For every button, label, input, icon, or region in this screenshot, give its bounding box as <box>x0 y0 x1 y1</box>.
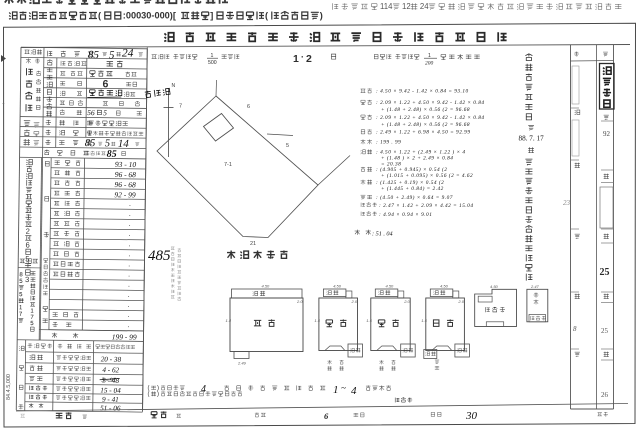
svg-text:(: ( <box>148 392 150 398</box>
svg-text:7-1: 7-1 <box>224 162 232 168</box>
svg-text:·: · <box>128 293 130 300</box>
svg-text:2.0: 2.0 <box>403 299 410 304</box>
svg-text:500: 500 <box>208 60 217 66</box>
svg-text:4.50: 4.50 <box>262 284 271 289</box>
svg-text:+ (1.48 + 2.48) × 0.56 (2 = 96: + (1.48 + 2.48) × 0.56 (2 = 96.68 <box>381 121 470 128</box>
svg-text:·: · <box>128 243 130 250</box>
svg-text:93 - 10: 93 - 10 <box>115 160 137 169</box>
svg-text:·: · <box>128 232 130 239</box>
svg-text:200: 200 <box>425 61 434 67</box>
svg-text:92 - 99: 92 - 99 <box>114 190 136 199</box>
svg-text:4.50: 4.50 <box>386 284 395 289</box>
svg-text:·: · <box>127 303 129 310</box>
svg-text:·: · <box>301 52 304 62</box>
svg-text:114: 114 <box>380 2 393 11</box>
svg-text:·: · <box>128 283 130 290</box>
svg-text:: 4.50 × 1.22 + (2.49 × 1.22 ): : 4.50 × 1.22 + (2.49 × 1.22 ) × 4 <box>376 149 466 156</box>
svg-text:: 4.94 × 0.94 × 9.01: : 4.94 × 0.94 × 9.01 <box>379 212 432 218</box>
svg-text:·: · <box>128 253 130 260</box>
svg-text:96 - 68: 96 - 68 <box>115 180 137 189</box>
svg-text:·: · <box>129 212 131 219</box>
svg-text:12: 12 <box>402 2 411 11</box>
svg-text:+ (1.015 + 0.095) × 0.56 (2 =: + (1.015 + 0.095) × 0.56 (2 = 4.62 <box>381 172 473 179</box>
svg-text:·: · <box>127 324 129 331</box>
svg-text:3: 3 <box>25 275 29 284</box>
svg-text:84.4.5,000: 84.4.5,000 <box>6 374 12 400</box>
svg-text:: (4.50 + 2.49) × 0.64 = 9.07: : (4.50 + 2.49) × 0.64 = 9.07 <box>376 194 453 201</box>
svg-text:·: · <box>127 313 129 320</box>
svg-text:6: 6 <box>25 241 29 250</box>
svg-text:85: 85 <box>88 49 100 61</box>
svg-text:26: 26 <box>601 391 609 399</box>
svg-text:485: 485 <box>148 248 171 264</box>
svg-text:1.4: 1.4 <box>421 318 427 323</box>
svg-text:4.50: 4.50 <box>440 284 449 289</box>
svg-text:14: 14 <box>118 138 130 150</box>
svg-text:): ) <box>157 392 159 398</box>
svg-text:96 - 68: 96 - 68 <box>115 170 137 179</box>
svg-text:4 - 62: 4 - 62 <box>102 366 119 374</box>
svg-text:5 - 97: 5 - 97 <box>101 377 116 384</box>
svg-text:15 - 04: 15 - 04 <box>100 387 121 395</box>
svg-text:7: 7 <box>179 104 182 110</box>
svg-text:1.4: 1.4 <box>226 318 232 323</box>
svg-text:+ (1.445 + 0.84) = 2.42: + (1.445 + 0.84) = 2.42 <box>381 185 444 192</box>
svg-text:: (1.425 + 0.19) × 0.54 (2: : (1.425 + 0.19) × 0.54 (2 <box>376 179 444 186</box>
svg-text:6: 6 <box>102 78 108 90</box>
svg-text:2.0: 2.0 <box>296 299 303 304</box>
svg-text:·: · <box>128 263 130 270</box>
svg-text:: 2.09 × 1.22 + 4.50 × 9.42 -: : 2.09 × 1.22 + 4.50 × 9.42 - 1.42 × 0.8… <box>376 115 485 121</box>
svg-text:85: 85 <box>107 149 117 160</box>
svg-text:85: 85 <box>85 138 96 149</box>
svg-text:4: 4 <box>351 385 357 397</box>
svg-text:1.4: 1.4 <box>314 318 320 323</box>
svg-text:N: N <box>172 83 176 89</box>
svg-text:2.47: 2.47 <box>530 284 540 289</box>
svg-text:): ) <box>320 11 323 21</box>
svg-text:24: 24 <box>122 47 134 59</box>
svg-text:4.50: 4.50 <box>490 284 499 289</box>
svg-text:1: 1 <box>293 53 299 65</box>
svg-text:·: · <box>129 202 131 209</box>
svg-text:30: 30 <box>465 410 478 422</box>
svg-text:4.50: 4.50 <box>333 284 342 289</box>
svg-text:1.4: 1.4 <box>366 318 372 323</box>
svg-text:2: 2 <box>306 53 312 65</box>
svg-text:8: 8 <box>573 325 577 333</box>
svg-text:..: .. <box>2 100 5 106</box>
svg-text:: 2.47 × 1.42 + 2.09 × 4.42 =: : 2.47 × 1.42 + 2.09 × 4.42 = 15.04 <box>379 203 473 209</box>
svg-text:23: 23 <box>563 199 571 207</box>
svg-text:~: ~ <box>341 383 346 393</box>
svg-text::00030-000)[: :00030-000)[ <box>123 11 176 21</box>
svg-text:: 2.49 × 1.22 + 6.98 × 4.50 =: : 2.49 × 1.22 + 6.98 × 4.50 = 92.99 <box>376 130 470 136</box>
svg-text:5: 5 <box>103 108 107 117</box>
svg-text:9 - 41: 9 - 41 <box>102 396 119 404</box>
svg-text:2.0: 2.0 <box>457 299 464 304</box>
svg-text:: 2.09 × 1.22 + 4.50 × 9.42 -: : 2.09 × 1.22 + 4.50 × 9.42 - 1.42 × 0.8… <box>376 100 485 106</box>
svg-text:]: ] <box>210 11 213 21</box>
svg-text:: 199 . 99: : 199 . 99 <box>376 140 401 146</box>
svg-text:+ (1.48 + 2.48) × 0.56 (2 = 96: + (1.48 + 2.48) × 0.56 (2 = 96.68 <box>381 106 470 113</box>
svg-text:88. 7. 17: 88. 7. 17 <box>519 135 545 143</box>
svg-text:: 4.50 × 9.42 - 1.42 × 0.84 =: : 4.50 × 9.42 - 1.42 × 0.84 = 93.10 <box>376 89 469 95</box>
svg-text:5: 5 <box>105 138 110 149</box>
svg-text:20 - 38: 20 - 38 <box>101 355 122 363</box>
svg-text:51 - 06: 51 - 06 <box>100 404 121 412</box>
svg-text:5: 5 <box>109 49 115 61</box>
svg-text:199 - 99: 199 - 99 <box>112 332 137 341</box>
svg-text:2.0: 2.0 <box>351 299 358 304</box>
svg-text:2.49: 2.49 <box>237 361 247 366</box>
svg-text:56: 56 <box>87 108 95 117</box>
svg-text:5: 5 <box>286 143 289 149</box>
svg-text:1: 1 <box>333 384 339 396</box>
svg-text:21: 21 <box>250 241 256 247</box>
svg-text:: 51 . 04: : 51 . 04 <box>372 231 393 238</box>
svg-text:25: 25 <box>600 267 610 278</box>
svg-text:6: 6 <box>247 104 250 110</box>
svg-text:·: · <box>128 222 130 229</box>
svg-text:24: 24 <box>420 2 429 11</box>
svg-text:25: 25 <box>601 327 609 335</box>
svg-text:2: 2 <box>26 227 30 236</box>
svg-text:·: · <box>128 273 130 280</box>
svg-text:92: 92 <box>603 130 611 138</box>
